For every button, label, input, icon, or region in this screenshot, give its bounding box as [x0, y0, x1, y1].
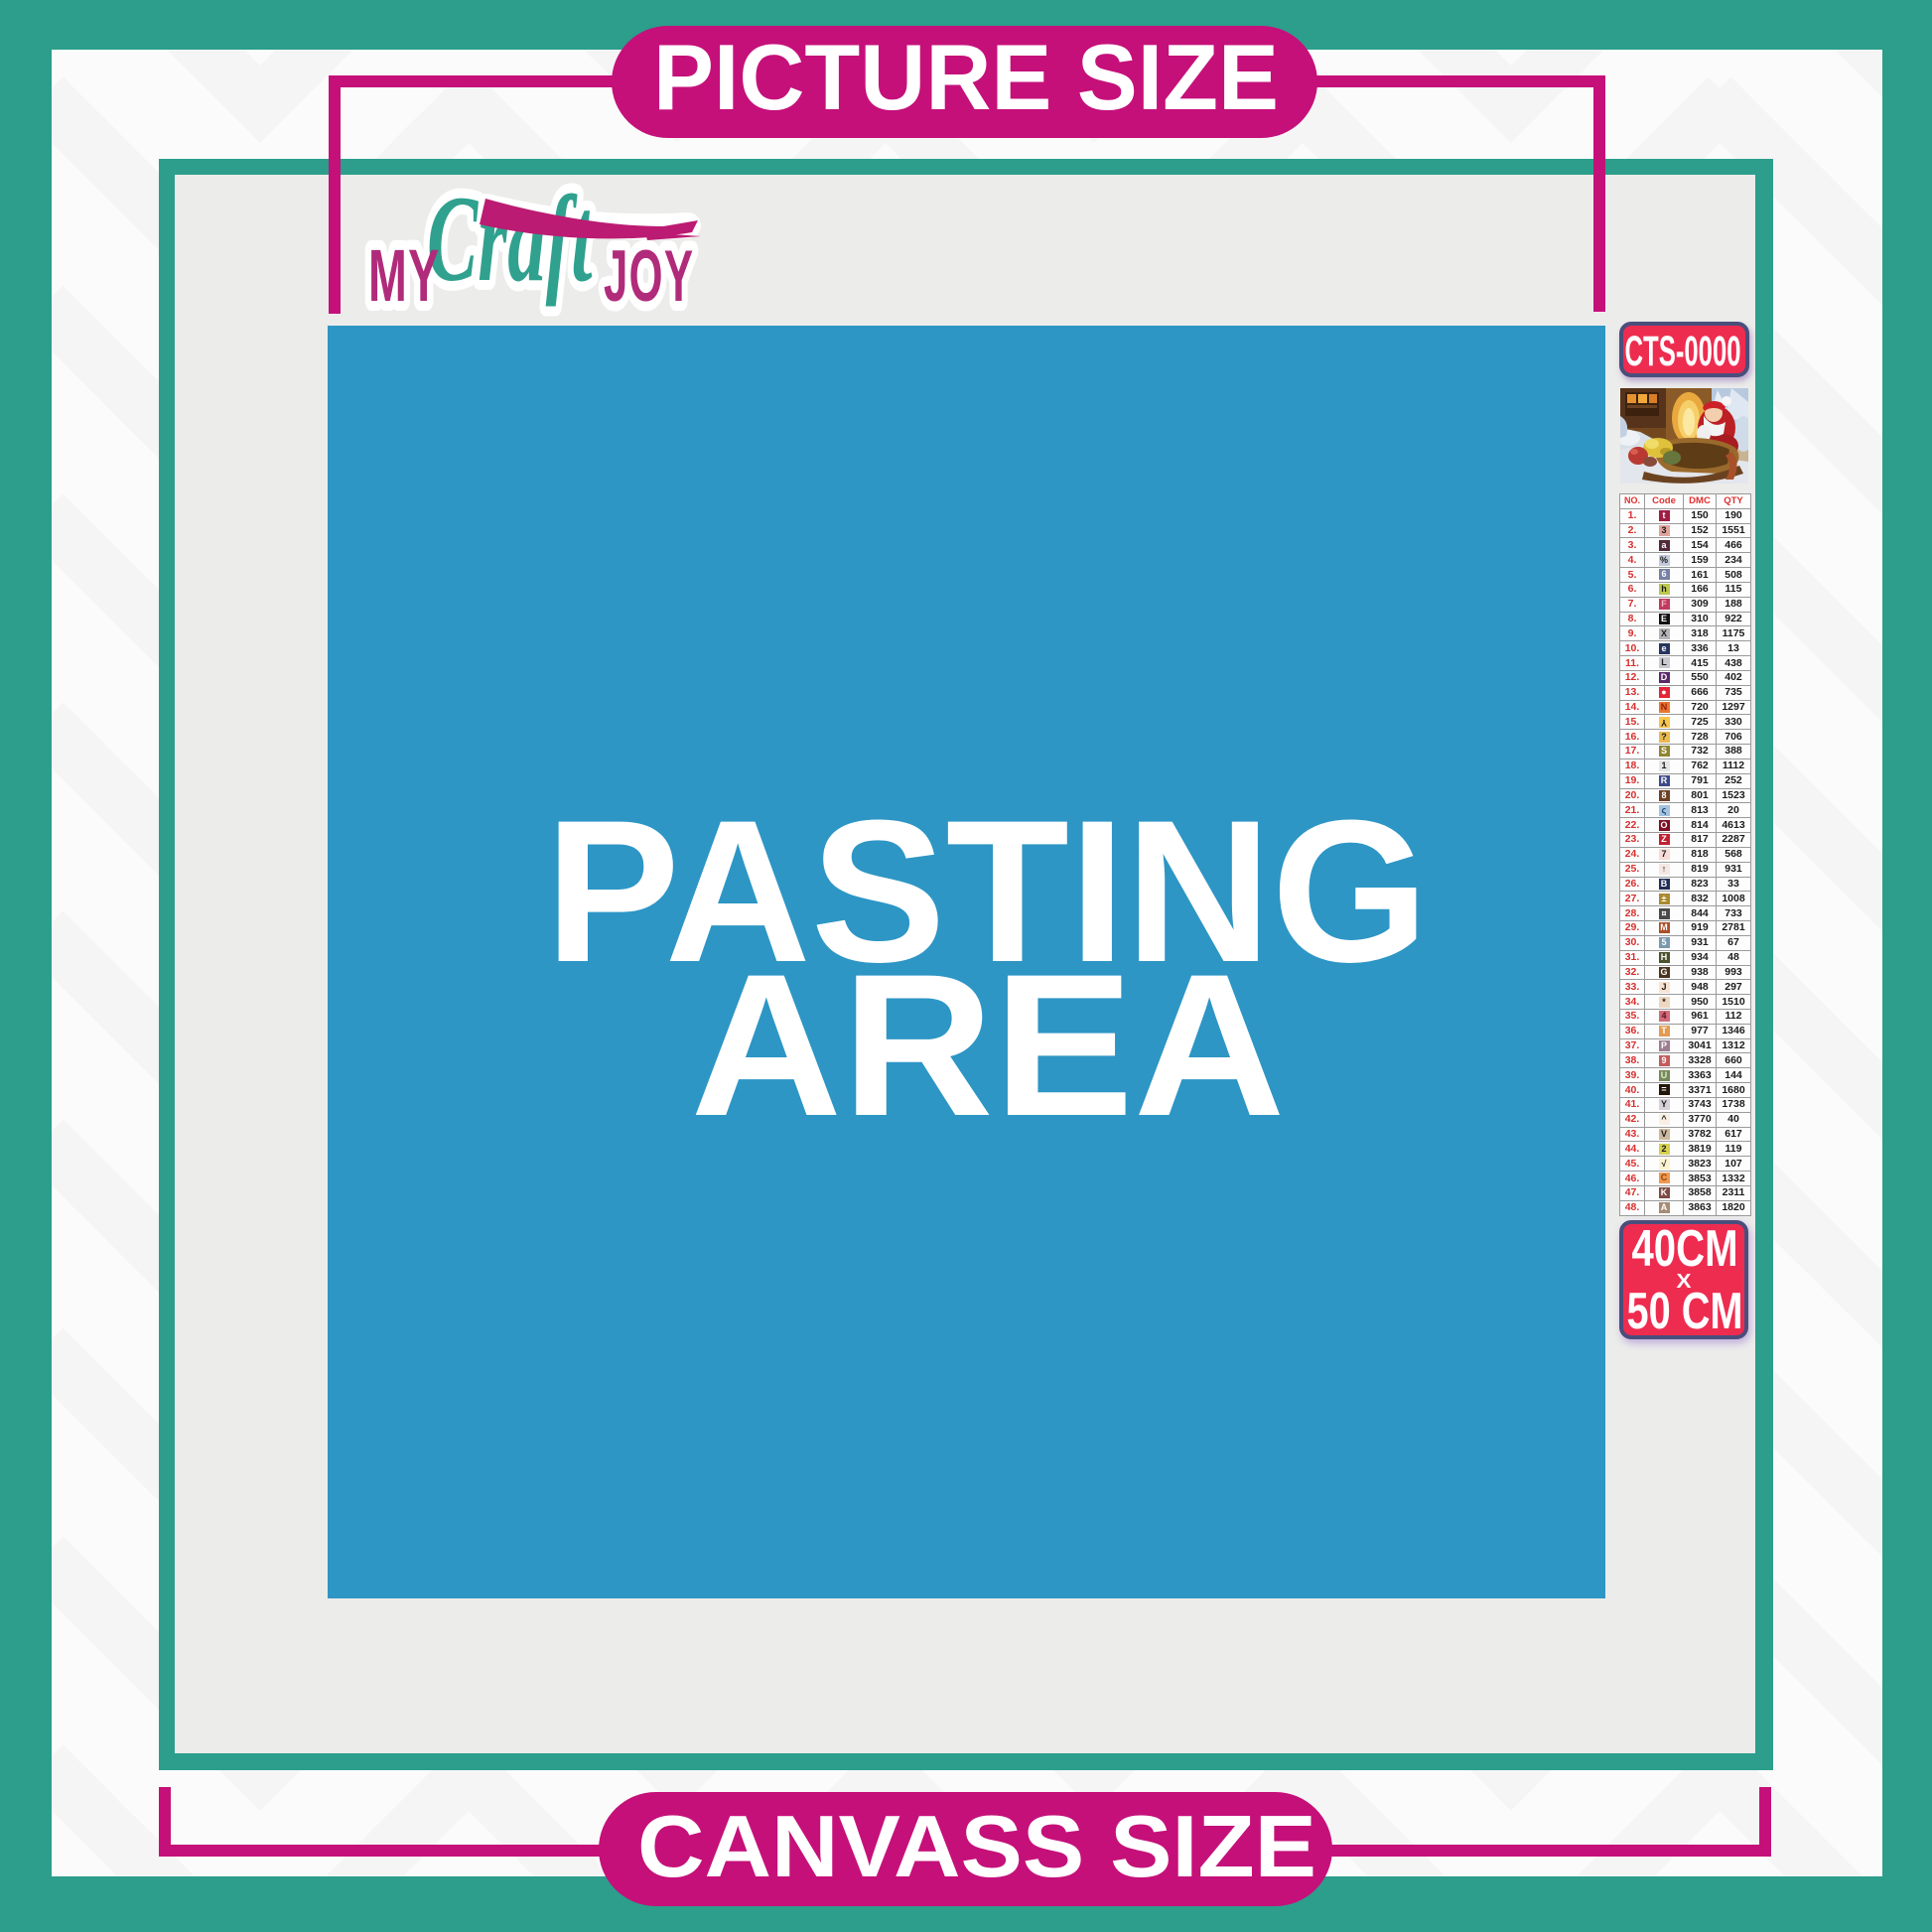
svg-text:50 CM: 50 CM — [1627, 1283, 1743, 1340]
svg-text:AREA: AREA — [691, 932, 1286, 1159]
svg-text:PICTURE SIZE: PICTURE SIZE — [653, 25, 1279, 129]
svg-text:CANVASS SIZE: CANVASS SIZE — [637, 1797, 1316, 1895]
svg-text:40CM: 40CM — [1632, 1220, 1738, 1278]
svg-text:CTS-0000: CTS-0000 — [1625, 328, 1741, 375]
